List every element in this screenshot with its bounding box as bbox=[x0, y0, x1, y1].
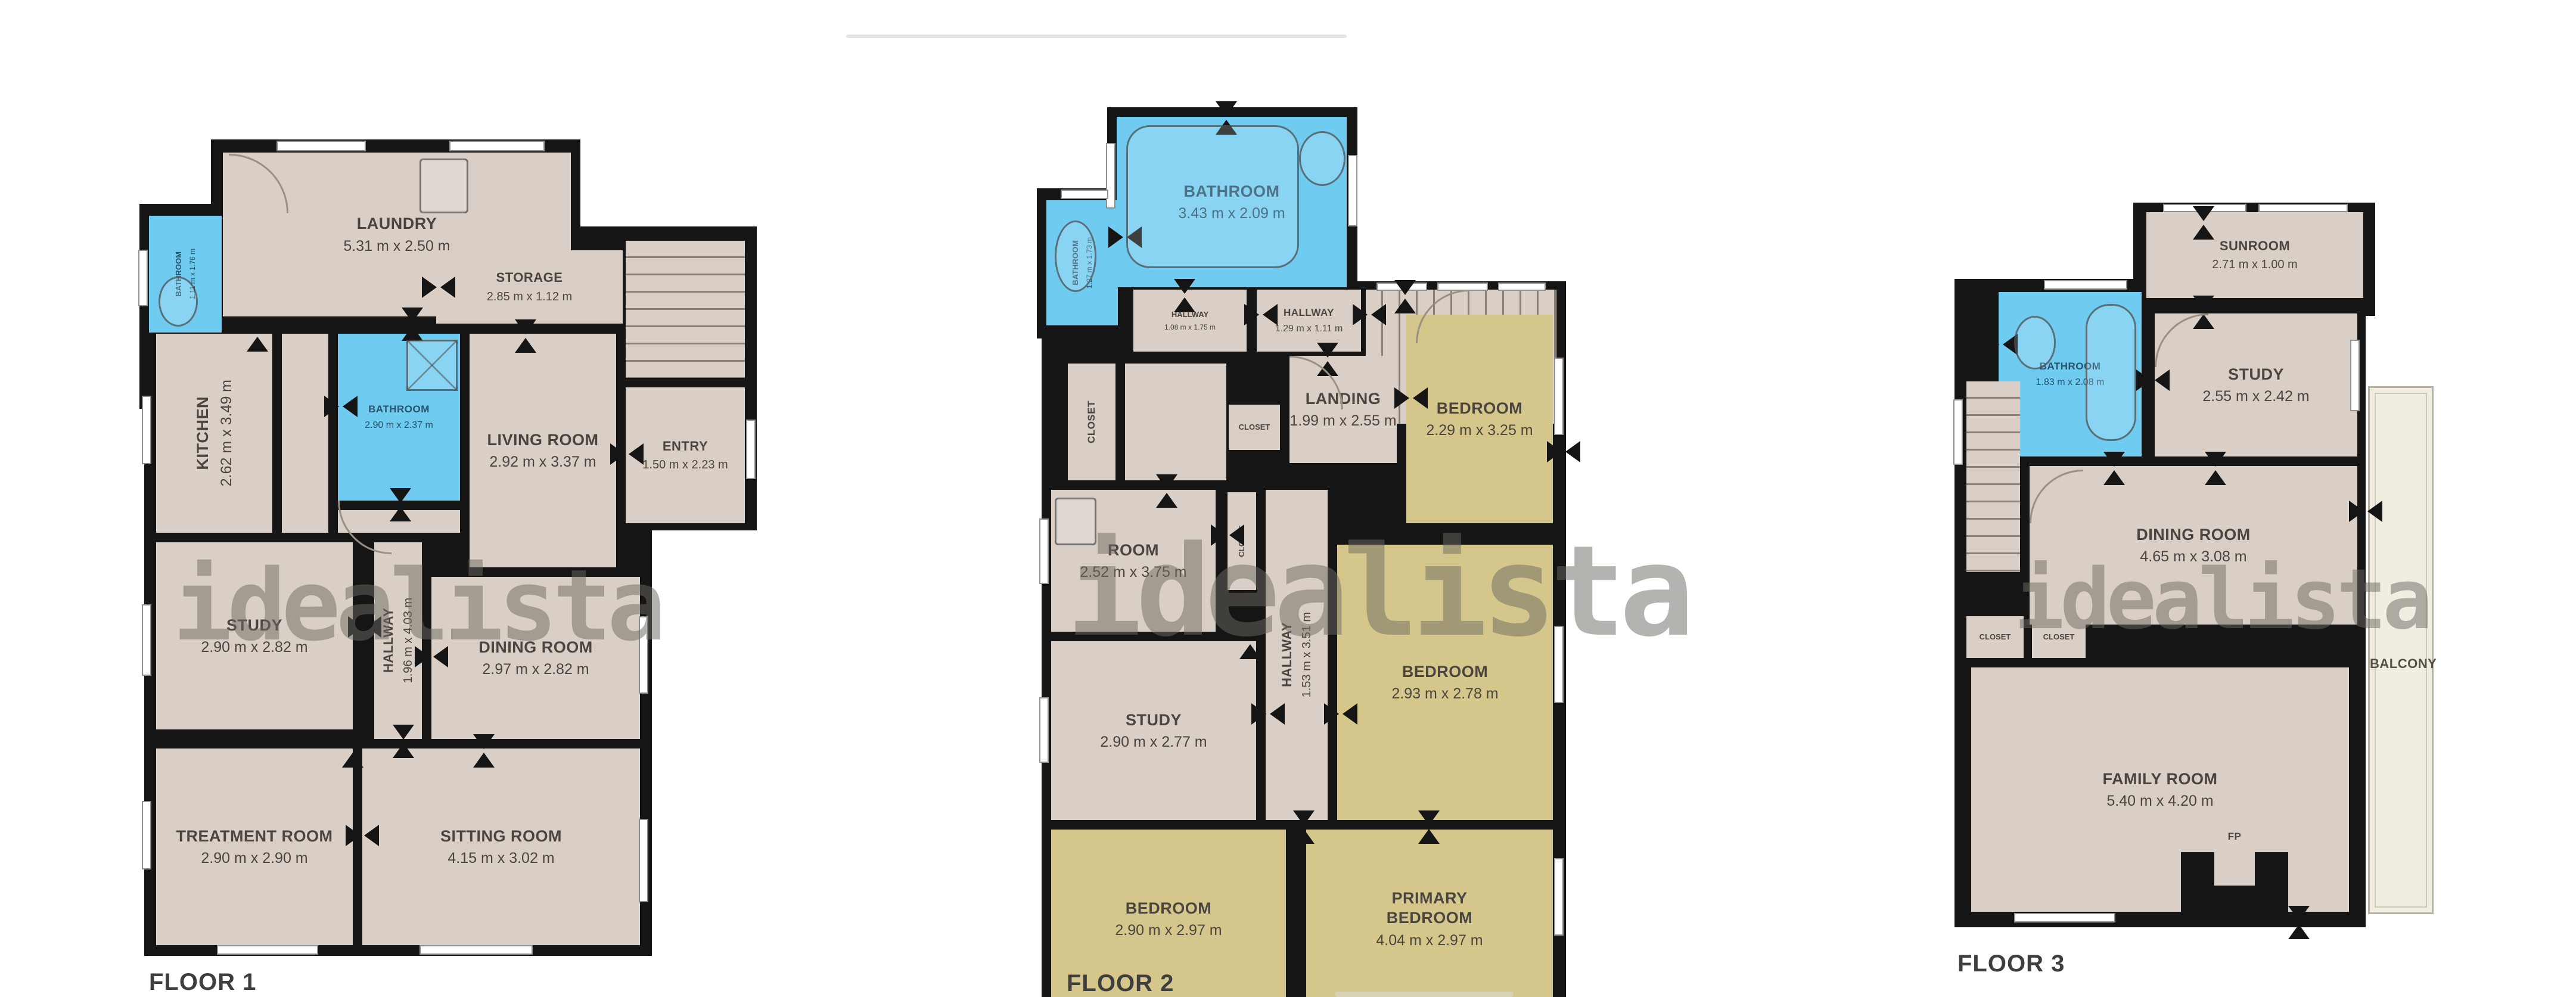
room-dims: 4.65 m x 3.08 m bbox=[2140, 548, 2246, 566]
cropped-text-fragment bbox=[1335, 992, 1514, 997]
room-kitchen: KITCHEN 2.62 m x 3.49 m bbox=[156, 334, 272, 533]
floor-3-plan: BALCONY SUNROOM 2.71 m x 1.00 m BATHROOM… bbox=[1954, 203, 2437, 977]
room-name: PRIMARY BEDROOM bbox=[1385, 889, 1474, 928]
window bbox=[142, 604, 151, 676]
room-name: HALLWAY bbox=[1284, 307, 1334, 319]
door-marker bbox=[1211, 524, 1244, 546]
room-closet-2: CLOSET bbox=[2032, 616, 2086, 658]
floor-2-plan: BATHROOM 3.43 m x 2.09 m BATHROOM 1.27 m… bbox=[1037, 107, 1573, 997]
window bbox=[1039, 697, 1049, 763]
door-marker bbox=[324, 396, 358, 417]
room-name: FAMILY ROOM bbox=[2102, 769, 2217, 789]
door-marker bbox=[2288, 906, 2310, 939]
toilet-fixture bbox=[159, 277, 198, 327]
room-name: BEDROOM bbox=[1437, 399, 1523, 418]
room-dims: 4.15 m x 3.02 m bbox=[448, 849, 554, 867]
room-name: BEDROOM bbox=[1402, 662, 1489, 682]
window bbox=[1953, 399, 1963, 465]
open-area bbox=[282, 334, 328, 533]
room-name: BALCONY bbox=[2370, 656, 2432, 672]
top-divider-line bbox=[846, 35, 1347, 38]
window bbox=[1039, 518, 1049, 584]
room-dims: 1.08 m x 1.75 m bbox=[1164, 323, 1216, 331]
door-marker bbox=[390, 488, 411, 521]
room-study: STUDY 2.90 m x 2.77 m bbox=[1051, 641, 1256, 820]
room-dims: 2.52 m x 3.75 m bbox=[1080, 563, 1186, 581]
room-closet-left: CLOSET bbox=[1068, 364, 1115, 480]
room-study: STUDY 2.90 m x 2.82 m bbox=[156, 542, 353, 729]
door-marker bbox=[1251, 703, 1285, 725]
room-dims: 1.29 m x 1.11 m bbox=[1275, 323, 1343, 334]
room-name: CLOSET bbox=[1086, 400, 1098, 443]
toilet-fixture bbox=[2014, 316, 2056, 369]
room-dims: 1.50 m x 2.23 m bbox=[642, 458, 728, 472]
room-name: CLOSET bbox=[1239, 423, 1270, 432]
room-dims: 2.29 m x 3.25 m bbox=[1426, 421, 1533, 439]
window bbox=[276, 141, 366, 151]
window bbox=[1348, 155, 1357, 226]
room-storage: STORAGE 2.85 m x 1.12 m bbox=[436, 250, 623, 324]
bathtub-fixture bbox=[1126, 125, 1299, 268]
window bbox=[142, 396, 151, 464]
shower-fixture bbox=[406, 340, 458, 391]
door-marker bbox=[515, 319, 536, 353]
window bbox=[639, 616, 648, 694]
room-dims: 2.90 m x 2.82 m bbox=[201, 638, 307, 656]
room-name: BATHROOM bbox=[368, 403, 430, 416]
door-marker bbox=[348, 616, 381, 638]
door-marker bbox=[1394, 280, 1416, 313]
door-marker bbox=[422, 277, 455, 298]
door-marker bbox=[2193, 206, 2214, 240]
bathtub-fixture bbox=[2086, 304, 2136, 441]
door-marker bbox=[1156, 474, 1177, 508]
window bbox=[449, 141, 545, 151]
floor-1-label: FLOOR 1 bbox=[149, 969, 256, 996]
door-marker bbox=[473, 734, 495, 768]
room-name: TREATMENT ROOM bbox=[176, 827, 333, 846]
room-name: HALLWAY bbox=[381, 608, 397, 673]
door-marker bbox=[415, 646, 448, 667]
door-marker bbox=[2205, 452, 2226, 485]
toilet-fixture bbox=[1055, 220, 1096, 292]
room-dims: 1.99 m x 2.55 m bbox=[1289, 412, 1396, 430]
room-dims: 4.04 m x 2.97 m bbox=[1376, 931, 1483, 949]
window bbox=[1554, 358, 1564, 435]
room-name: SITTING ROOM bbox=[440, 827, 562, 846]
room-name: STUDY bbox=[2228, 365, 2284, 384]
room-dims: 2.90 m x 2.90 m bbox=[201, 849, 307, 867]
room-family: FAMILY ROOM 5.40 m x 4.20 m bbox=[1971, 667, 2349, 912]
door-marker bbox=[610, 443, 644, 465]
room-dims: 2.62 m x 3.49 m bbox=[217, 380, 235, 486]
door-marker bbox=[1353, 304, 1386, 325]
door-marker bbox=[1394, 387, 1428, 409]
door-marker bbox=[342, 734, 363, 768]
door-marker bbox=[2103, 452, 2125, 485]
room-hallway: HALLWAY 1.96 m x 4.03 m bbox=[374, 542, 422, 739]
room-treatment: TREATMENT ROOM 2.90 m x 2.90 m bbox=[156, 748, 353, 945]
fireplace-label: FP bbox=[2205, 825, 2264, 849]
staircase bbox=[1966, 381, 2020, 572]
door-marker bbox=[2349, 501, 2382, 522]
window bbox=[2014, 913, 2115, 923]
room-name: STUDY bbox=[226, 616, 282, 635]
room-name: LAUNDRY bbox=[357, 214, 437, 234]
floor-1-plan: LAUNDRY 5.31 m x 2.50 m BATHROOM 1.11 m … bbox=[139, 139, 771, 997]
room-sitting: SITTING ROOM 4.15 m x 3.02 m bbox=[362, 748, 640, 945]
room-dining: DINING ROOM 2.97 m x 2.82 m bbox=[431, 577, 640, 739]
door-marker bbox=[247, 318, 268, 352]
toilet-fixture bbox=[1299, 131, 1346, 186]
window bbox=[639, 819, 648, 902]
open-area bbox=[1125, 364, 1226, 480]
door-marker bbox=[1324, 703, 1357, 725]
room-closet-1: CLOSET bbox=[1966, 616, 2024, 658]
fireplace-opening bbox=[2214, 852, 2255, 886]
door-marker bbox=[1984, 334, 2018, 355]
room-balcony: BALCONY bbox=[2368, 386, 2434, 914]
floorplan-image: LAUNDRY 5.31 m x 2.50 m BATHROOM 1.11 m … bbox=[0, 0, 2576, 997]
room-hallway-vertical: HALLWAY 1.53 m x 3.51 m bbox=[1266, 490, 1328, 820]
door-marker bbox=[1239, 626, 1261, 659]
room-dims: 2.85 m x 1.12 m bbox=[487, 290, 572, 304]
room-name: ENTRY bbox=[663, 439, 708, 455]
window bbox=[2350, 340, 2360, 411]
window bbox=[138, 250, 148, 306]
room-dims: 5.40 m x 4.20 m bbox=[2106, 792, 2213, 810]
room-dims: 5.31 m x 2.50 m bbox=[343, 237, 450, 255]
room-dims: 2.55 m x 2.42 m bbox=[2202, 387, 2309, 405]
room-sunroom: SUNROOM 2.71 m x 1.00 m bbox=[2146, 212, 2363, 298]
room-bedroom-1: BEDROOM 2.29 m x 3.25 m bbox=[1406, 315, 1553, 523]
room-dims: 2.92 m x 3.37 m bbox=[489, 453, 596, 471]
floor-2-label: FLOOR 2 bbox=[1067, 970, 1174, 997]
room-living: LIVING ROOM 2.92 m x 3.37 m bbox=[470, 334, 616, 567]
room-name: DINING ROOM bbox=[2136, 525, 2251, 545]
window bbox=[1554, 626, 1564, 703]
room-name: STUDY bbox=[1126, 710, 1182, 730]
window bbox=[420, 945, 533, 955]
door-marker bbox=[1244, 304, 1278, 325]
room-name: HALLWAY bbox=[1279, 622, 1295, 687]
staircase bbox=[626, 241, 745, 378]
door-marker bbox=[402, 308, 423, 341]
door-marker bbox=[2136, 369, 2170, 391]
room-dims: 2.71 m x 1.00 m bbox=[2212, 257, 2297, 272]
room-dims: 2.97 m x 2.82 m bbox=[482, 660, 589, 678]
window bbox=[142, 801, 151, 869]
floor-3-label: FLOOR 3 bbox=[1957, 951, 2065, 977]
room-name: LIVING ROOM bbox=[487, 430, 599, 450]
window bbox=[2258, 204, 2348, 212]
appliance-fixture bbox=[1055, 498, 1096, 545]
door-marker bbox=[1547, 441, 1580, 462]
door-marker bbox=[346, 825, 379, 846]
room-dims: 1.53 m x 3.51 m bbox=[1300, 612, 1314, 697]
room-dims: 2.90 m x 2.37 m bbox=[365, 420, 433, 431]
window bbox=[1061, 190, 1108, 199]
window bbox=[217, 945, 318, 955]
window bbox=[2044, 280, 2127, 290]
room-name: KITCHEN bbox=[193, 396, 213, 470]
room-name: CLOSET bbox=[2043, 632, 2075, 642]
room-dims: 2.93 m x 2.78 m bbox=[1391, 685, 1498, 703]
room-dims: 2.90 m x 2.77 m bbox=[1100, 733, 1207, 751]
door-marker bbox=[393, 725, 414, 758]
window bbox=[1554, 858, 1564, 936]
room-name: ROOM bbox=[1108, 541, 1159, 560]
room-dims: 2.90 m x 2.97 m bbox=[1115, 921, 1222, 939]
room-name: CLOSET bbox=[1980, 632, 2011, 642]
room-name: DINING ROOM bbox=[478, 638, 593, 657]
room-primary-bedroom: PRIMARY BEDROOM 4.04 m x 2.97 m bbox=[1306, 830, 1553, 997]
room-entry: ENTRY 1.50 m x 2.23 m bbox=[626, 387, 745, 523]
door-marker bbox=[1418, 810, 1440, 844]
room-dims: 1.96 m x 4.03 m bbox=[401, 598, 415, 683]
door-marker bbox=[1293, 810, 1315, 844]
window bbox=[746, 420, 756, 479]
window bbox=[1498, 282, 1546, 291]
room-name: SUNROOM bbox=[2220, 238, 2290, 254]
appliance-fixture bbox=[420, 159, 468, 213]
door-marker bbox=[1174, 279, 1195, 312]
room-closet-small: CLOSET bbox=[1229, 405, 1280, 450]
room-name: STORAGE bbox=[496, 270, 563, 286]
room-bedroom-2: BEDROOM 2.93 m x 2.78 m bbox=[1337, 545, 1553, 820]
room-name: FP bbox=[2228, 831, 2242, 843]
room-name: BEDROOM bbox=[1126, 899, 1212, 918]
